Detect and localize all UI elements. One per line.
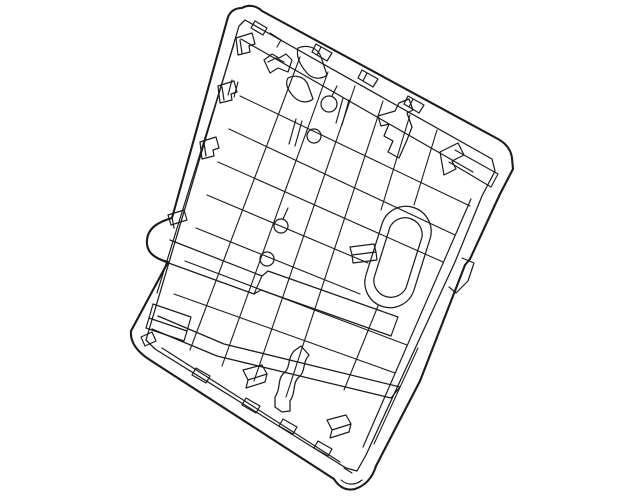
rib-2 — [222, 72, 328, 366]
diagram-canvas — [0, 0, 640, 497]
bracket-center — [378, 99, 413, 158]
right-member-boundary — [363, 199, 471, 447]
m-clip — [264, 54, 292, 73]
s-channel-bottom — [275, 407, 290, 412]
pin-tails — [283, 86, 337, 219]
beam-upper-bottom — [163, 261, 391, 336]
clip-left-2 — [218, 81, 237, 103]
bottom-deep-rim — [162, 348, 340, 462]
beam-upper-end — [391, 317, 398, 336]
beam-upper-top — [170, 240, 398, 317]
wedge-clip-2 — [327, 415, 351, 438]
rib-5 — [381, 115, 410, 210]
bracket-right — [440, 143, 464, 175]
s-channel-right-wall — [290, 355, 309, 411]
hook-lower — [287, 76, 313, 102]
inner-rim — [146, 20, 495, 471]
rib-6 — [414, 130, 437, 205]
clip-bottom-corner — [141, 332, 156, 346]
seat-back-panel-diagram — [0, 0, 640, 497]
clip-left-1 — [236, 33, 255, 55]
capsule-boss-outer — [365, 206, 431, 307]
cross-rib-7 — [174, 294, 395, 373]
pin-hole-1 — [321, 96, 337, 112]
box-lower-left — [146, 304, 191, 341]
cross-rib-5 — [196, 228, 360, 294]
foot-inner — [341, 468, 362, 484]
left-deep-rim — [157, 44, 234, 293]
